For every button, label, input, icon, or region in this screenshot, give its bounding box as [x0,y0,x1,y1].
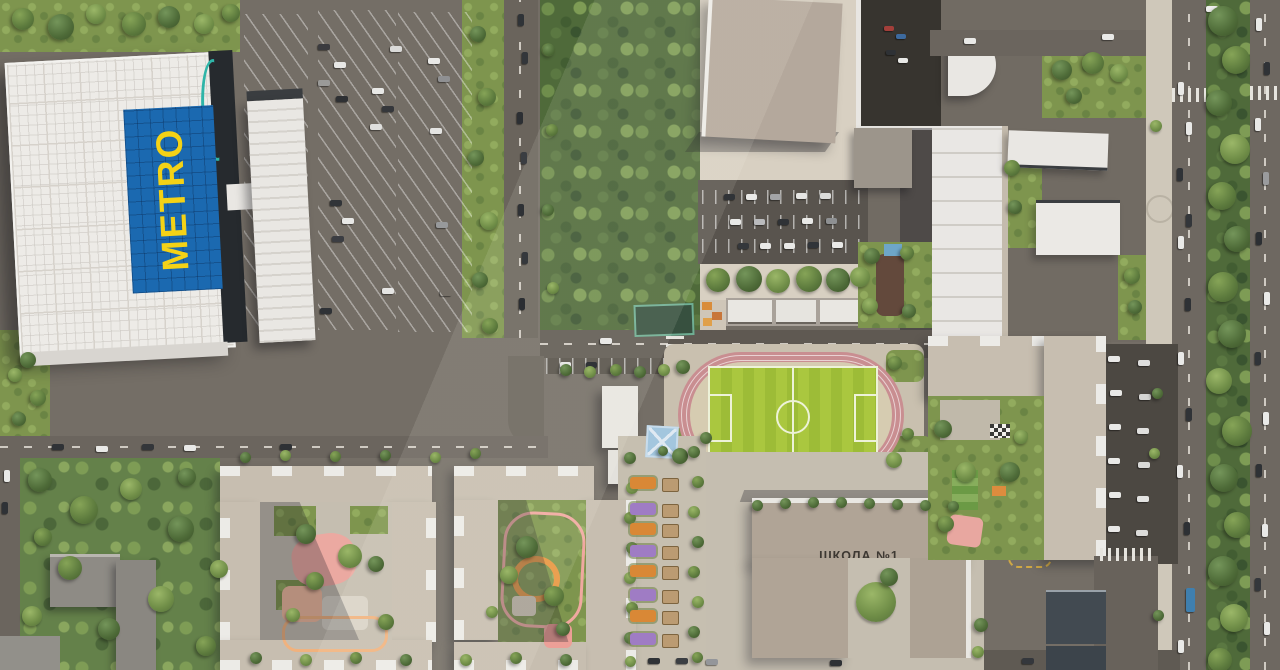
car [52,444,64,450]
car [184,445,196,451]
tree [194,14,214,34]
car [332,236,344,242]
tree [1208,648,1232,670]
car [96,446,108,452]
retail-roof-2 [776,300,816,324]
crosswalk-frontage [1100,548,1152,561]
tree [688,626,700,638]
car [676,658,688,664]
metro-side-building [247,98,316,343]
car [142,444,154,450]
tree [1206,368,1232,394]
tree [460,654,472,666]
tree [1124,268,1140,284]
school-wing-right [910,558,971,658]
block2-west [454,500,498,640]
car [1108,458,1120,464]
garden-pergola [662,634,679,648]
tree [584,366,596,378]
car [1138,462,1150,468]
tree [500,566,518,584]
forest [540,0,712,338]
car [1177,465,1183,478]
tree [470,448,481,459]
tree [178,468,196,486]
basketball-court [633,303,694,337]
car [318,44,330,50]
garden-bed [630,477,656,489]
car [522,252,528,264]
garden-pergola [662,590,679,604]
tree [120,478,142,500]
tree [1210,464,1238,492]
tree [1224,512,1250,538]
car [896,34,906,39]
car [1185,298,1191,311]
tree [22,606,42,626]
pitch-penalty-box-left [710,394,732,442]
tree [948,501,959,512]
tree [850,267,870,287]
tree [300,654,312,666]
car [4,470,10,482]
car [330,200,342,206]
car [826,218,837,224]
tree [1220,134,1250,164]
residential-block-east-east [1044,336,1106,560]
tree [1206,90,1232,116]
tree [378,614,394,630]
tree [892,499,903,510]
car [770,194,781,200]
promenade-circle [1146,195,1174,223]
car [1256,464,1262,477]
tree [658,446,668,456]
tree [98,618,120,640]
metro-sign: METRO [123,105,223,293]
car [382,106,394,112]
kiosk-orange-2 [712,312,722,320]
tree [692,536,704,548]
tree [478,88,496,106]
tree [338,544,362,568]
garden-bed [630,589,656,601]
car [1186,588,1195,612]
car [808,242,819,248]
tree [148,586,174,612]
car [1178,82,1184,95]
tree [1224,226,1250,252]
garden-pergola [662,611,679,625]
car [440,290,452,296]
tree [1000,462,1020,482]
tree [12,412,26,426]
crosswalk-highway-east [1250,86,1280,100]
car [382,288,394,294]
tree [286,608,300,622]
car [1184,522,1190,535]
existing-building-c [0,636,60,670]
tree [8,368,22,382]
car [784,243,795,249]
car [2,502,8,514]
car [372,88,384,94]
tree [210,560,228,578]
tree [158,6,180,28]
car [370,124,382,130]
tree [48,14,74,40]
garden-pergola [662,546,679,560]
tree [1222,46,1250,74]
car [342,218,354,224]
tree [28,468,52,492]
road-west-line [0,446,548,448]
car [320,308,332,314]
garden-bed [630,565,656,577]
sports-court-dark-1 [1046,590,1106,644]
tree [430,452,441,463]
highway-lane-line-east [1264,0,1266,670]
car [521,152,527,164]
access-road-metro [504,0,538,338]
car [390,46,402,52]
car [1139,394,1151,400]
car [1255,578,1261,591]
garden-pergola [662,478,679,492]
tree [1066,88,1082,104]
tree [20,352,36,368]
car [724,194,735,200]
car [1263,172,1269,185]
tree [900,246,914,260]
tree [862,298,878,314]
tree [544,586,564,606]
car [428,58,440,64]
tree [1004,160,1020,176]
tree [836,497,847,508]
car [1138,360,1150,366]
checkerboard-plaza [990,424,1010,438]
tree [556,622,570,636]
car [884,26,894,31]
retail-roof-1 [728,300,772,324]
car [1136,530,1148,536]
car [1178,236,1184,249]
tree [1014,430,1028,444]
car [1102,34,1114,40]
block1-north [220,466,432,502]
garden-pergola [662,566,679,580]
car [1256,18,1262,31]
tree [610,364,622,376]
tree [1153,610,1164,621]
block2-north [454,466,594,500]
car [754,219,765,225]
parking-deck-building [856,0,941,130]
car [760,243,771,249]
tree [625,656,636,667]
car [778,219,789,225]
car [1186,408,1192,421]
tree [886,452,902,468]
car [1110,390,1122,396]
aerial-masterplan: METRO [0,0,1280,670]
tree [1208,272,1238,302]
tree [692,476,704,488]
tree [296,524,316,544]
tree [1220,604,1248,632]
tree [1208,556,1238,586]
car [1263,412,1269,425]
commercial-building-a [1007,130,1108,170]
tree [1208,182,1236,210]
car [430,128,442,134]
car [1109,424,1121,430]
tree [516,536,538,558]
tree [1110,64,1128,82]
car [1177,168,1183,181]
tree [547,282,559,294]
tree [634,366,646,378]
car [964,38,976,44]
road-center-line [519,0,521,338]
tree [676,360,690,374]
car [518,204,524,216]
tree [796,266,822,292]
tree [766,269,790,293]
tree [920,500,931,511]
kiosk-orange-3 [703,318,712,326]
tree [542,204,554,216]
tree [864,248,880,264]
tree [780,498,791,509]
car [519,298,525,310]
car [1186,122,1192,135]
tree [560,654,572,666]
road-connector [508,356,544,446]
car [1178,352,1184,365]
tree [380,450,391,461]
tree [306,572,324,590]
tree [902,428,914,440]
block2-east [586,500,636,670]
tree [222,4,240,22]
tree [1128,300,1142,314]
metro-sign-label: METRO [148,127,197,273]
garden-bed [630,503,656,515]
tree [688,446,700,458]
kiosk-orange-1 [702,302,712,310]
tree [86,4,106,24]
tree [34,528,52,546]
tree [808,497,819,508]
tree [688,506,700,518]
car [832,242,843,248]
tree [400,654,412,666]
car [820,193,831,199]
pitch-penalty-box-right [854,394,876,442]
tree [1208,6,1238,36]
car [648,658,660,664]
tree [624,452,636,464]
car [1264,62,1270,75]
tree [938,516,954,532]
tree [470,26,486,42]
car [1264,622,1270,635]
car [802,218,813,224]
car [336,96,348,102]
car [706,659,718,665]
car [522,52,528,64]
tree [1149,448,1160,459]
tree [196,636,216,656]
school-wing-left [752,558,848,658]
tree [122,12,146,36]
tree [70,496,98,524]
tree [250,652,262,664]
plaza-building [701,0,842,143]
car [334,62,346,68]
tree [706,268,730,292]
car [1109,492,1121,498]
commercial-building-b [1036,200,1120,255]
car [738,243,749,249]
tree [472,272,488,288]
tree [510,652,522,664]
existing-building-b [116,560,156,670]
car [746,194,757,200]
car [600,338,612,344]
tree [1082,52,1104,74]
car [1255,118,1261,131]
tree [888,356,902,370]
tree [856,582,896,622]
car [1137,428,1149,434]
tree [672,448,688,464]
tree [1218,320,1246,348]
tree [482,318,498,334]
car [436,222,448,228]
tree [1222,416,1252,446]
ne-beige-building [854,128,912,188]
tree [480,212,498,230]
tree [1008,200,1022,214]
courtyard-1-green-2 [350,506,388,534]
tree [688,566,700,578]
tree [934,420,952,438]
tree [560,364,572,376]
tree [30,390,46,406]
metro-store: METRO [0,32,328,368]
tree [692,596,704,608]
play-deck [876,254,904,316]
car [1186,214,1192,227]
tree [240,452,251,463]
tree [692,652,703,663]
tree [972,646,984,658]
car [1255,352,1261,365]
tree [880,568,898,586]
tree [1150,120,1162,132]
metro-parking-stalls-2 [318,10,396,330]
tree [280,450,291,461]
tree [1052,60,1072,80]
car [1022,658,1034,664]
car [796,193,807,199]
tree [974,618,988,632]
car [1137,496,1149,502]
car [518,14,524,26]
sports-court-dark-2 [1046,646,1106,670]
tree [864,498,875,509]
car [886,50,896,55]
car [438,76,450,82]
tree [168,516,194,542]
tree [58,556,82,580]
car [1108,526,1120,532]
residential-tower-strip [932,126,1008,346]
tree [826,268,850,292]
tree [350,652,362,664]
car [318,80,330,86]
car [1108,356,1120,362]
tree [700,432,712,444]
car [830,660,842,666]
garden-bed [630,545,656,557]
tree [658,364,670,376]
pitch-center-circle [776,400,810,434]
tree [330,451,341,462]
car [1178,640,1184,653]
tree [736,266,762,292]
car [517,112,523,124]
tree [486,606,498,618]
car [1264,292,1270,305]
tree [902,304,916,318]
tree [1152,388,1163,399]
tree [956,462,976,482]
tree [752,500,763,511]
garden-bed [630,610,656,622]
garden-pergola [662,524,679,538]
car [1262,524,1268,537]
garden-pergola [662,504,679,518]
car [898,58,908,63]
tree [468,150,484,166]
garden-bed [630,633,656,645]
tree [12,8,34,30]
garden-bed [630,523,656,535]
block1-east [392,502,436,642]
tree [546,124,558,136]
car [1256,232,1262,245]
car [730,219,741,225]
playground-orange-east [992,486,1006,496]
tree [368,556,384,572]
tree [543,44,555,56]
